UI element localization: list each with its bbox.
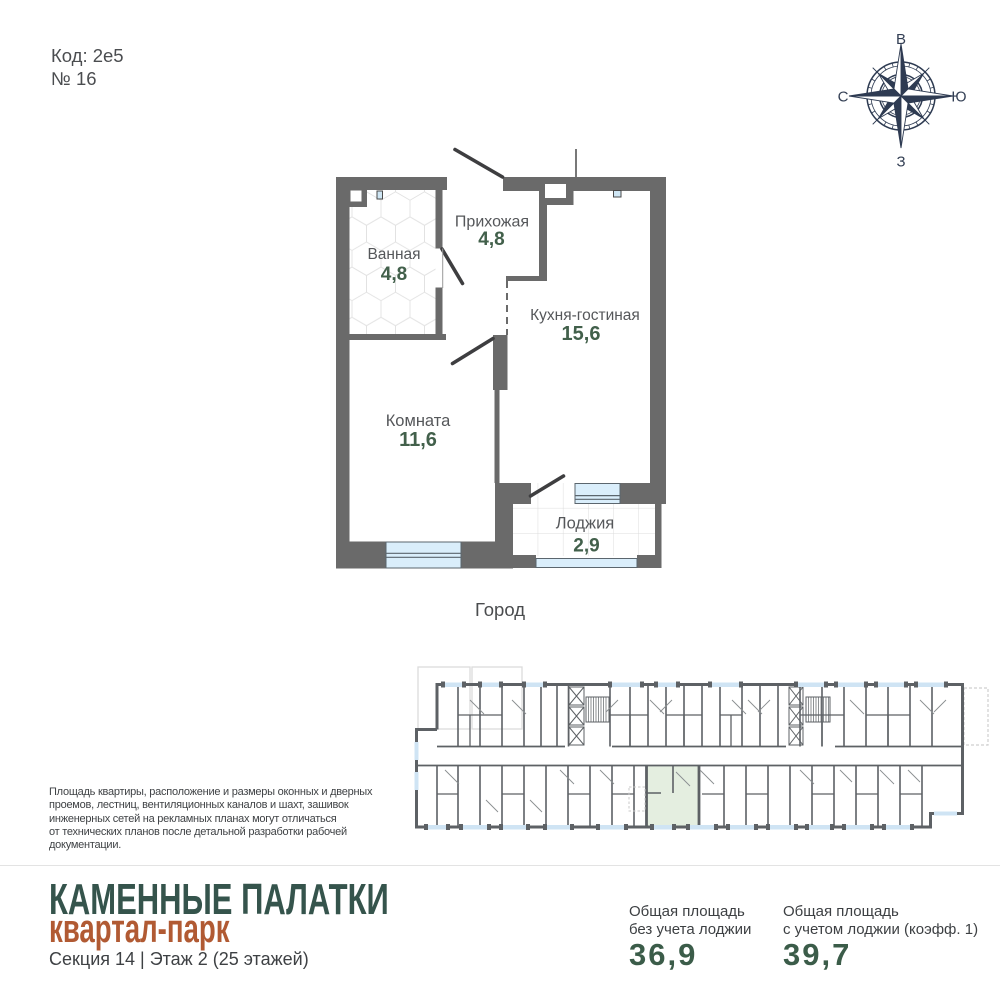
svg-text:З: З (896, 154, 905, 171)
svg-text:В: В (896, 31, 906, 48)
svg-text:Город: Город (475, 599, 525, 620)
svg-text:2,9: 2,9 (573, 536, 599, 557)
svg-text:Кухня-гостиная: Кухня-гостиная (530, 307, 640, 324)
svg-text:11,6: 11,6 (399, 429, 437, 451)
svg-text:Лоджия: Лоджия (556, 515, 614, 533)
svg-text:Ю: Ю (951, 89, 966, 106)
svg-text:4,8: 4,8 (478, 229, 504, 250)
svg-text:4,8: 4,8 (381, 264, 407, 285)
svg-text:С: С (838, 89, 849, 106)
svg-text:Прихожая: Прихожая (455, 214, 529, 231)
svg-text:Комната: Комната (386, 412, 451, 430)
svg-text:15,6: 15,6 (562, 323, 601, 345)
svg-text:Ванная: Ванная (367, 246, 420, 263)
